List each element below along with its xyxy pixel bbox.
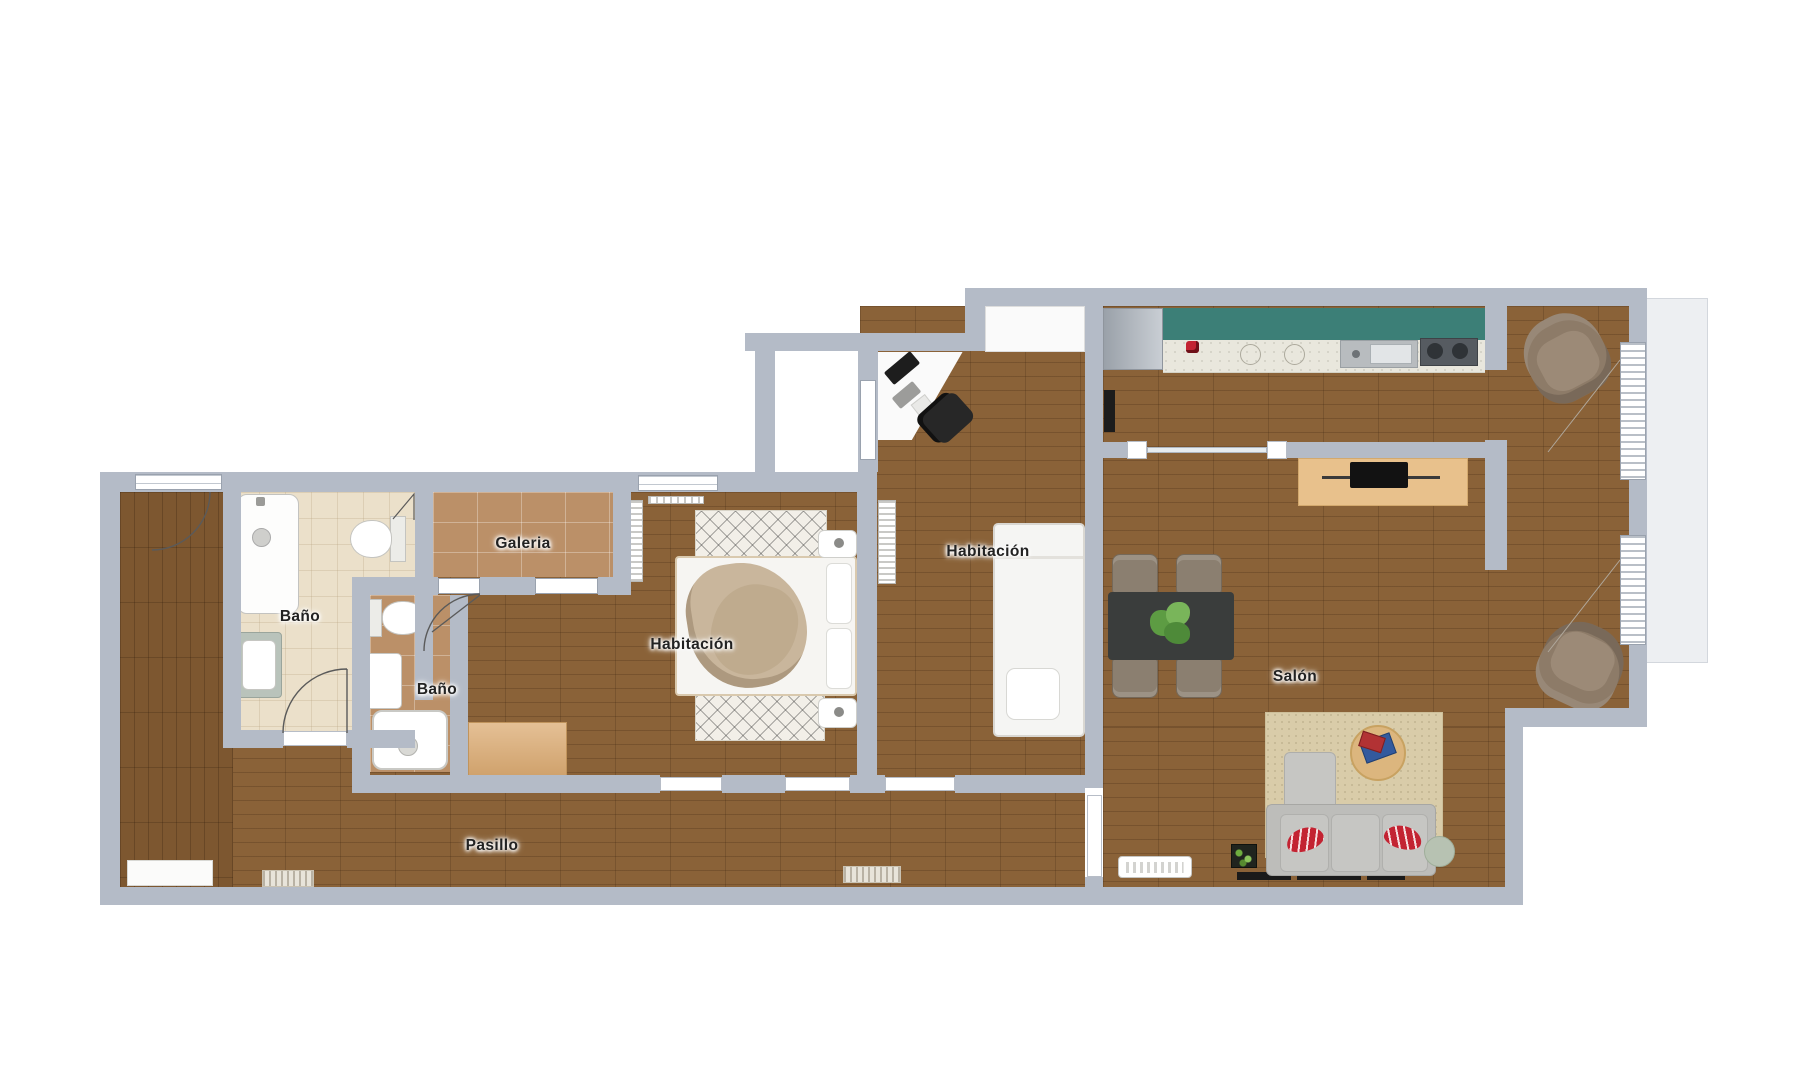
slider-frame [1127, 441, 1147, 459]
room-label-bano-pequeno: Baño [417, 681, 457, 699]
vanity-sink [242, 640, 276, 690]
table-plant-icon [1146, 600, 1198, 648]
kitchen-faucet-icon [1352, 350, 1360, 358]
wall-vent [648, 496, 704, 504]
wall [1085, 288, 1103, 788]
wall [755, 333, 775, 492]
wall [722, 775, 785, 793]
shower-head-icon [252, 528, 271, 547]
wall [352, 577, 370, 790]
floor-plan: Baño Galeria Baño Habitación Habitación … [0, 0, 1798, 1080]
bathtub [237, 494, 299, 614]
bed-pillow [826, 563, 852, 624]
wall [223, 492, 241, 748]
doormat [843, 866, 901, 883]
sofa-chaise [1284, 752, 1336, 810]
wall [415, 492, 433, 700]
wall [1103, 442, 1127, 458]
hall-cabinet [127, 860, 213, 886]
slider-frame [1267, 441, 1287, 459]
balcony-window [1620, 342, 1646, 480]
wall [598, 577, 631, 595]
kitchen-sink-basin [1370, 344, 1412, 364]
wall [850, 775, 885, 793]
door-habitacion-principal [660, 777, 722, 791]
radiator [878, 500, 896, 584]
tv [1350, 462, 1408, 488]
wall [1505, 708, 1523, 905]
sliding-door-habitacion-2 [885, 777, 955, 791]
fridge [1103, 308, 1163, 370]
room-label-pasillo: Pasillo [466, 837, 519, 855]
wall [1085, 877, 1103, 887]
planter-box [1231, 844, 1257, 868]
window [860, 380, 876, 460]
room-label-habitacion-principal: Habitación [650, 636, 733, 654]
wall [965, 288, 1647, 306]
burner-ring-icon [1284, 344, 1305, 365]
ac-unit [1118, 856, 1192, 878]
kitchen-upper-cabinets [1163, 308, 1485, 340]
door-pasillo-salon [1087, 795, 1102, 877]
room-label-habitacion-secundaria: Habitación [946, 543, 1029, 561]
sliding-door-habitacion-2 [785, 777, 850, 791]
dining-chair [1112, 658, 1158, 698]
bath-faucet-icon [256, 497, 265, 506]
closet-top [985, 306, 1085, 352]
doormat [262, 870, 314, 887]
room-label-bano-principal: Baño [280, 608, 320, 626]
single-bed-pillow [1006, 668, 1060, 720]
wall [1505, 708, 1647, 727]
plant-leaf [1164, 622, 1190, 644]
balcony-window [1620, 535, 1646, 645]
wall [1485, 440, 1507, 570]
nightstand-lamp-icon [834, 707, 844, 717]
room-label-galeria: Galeria [495, 535, 550, 553]
armchair-cushion [1545, 625, 1621, 697]
window [638, 475, 718, 491]
wall [100, 887, 1523, 905]
balcony [1646, 298, 1708, 663]
patio-void [775, 351, 860, 472]
galeria-window [535, 578, 598, 594]
room-label-salon: Salón [1273, 668, 1317, 686]
armchair-cushion [1530, 324, 1606, 398]
electric-panel [1104, 390, 1115, 432]
wall [100, 472, 120, 905]
dining-chair [1112, 554, 1158, 594]
dining-chair [1176, 554, 1222, 594]
wall [857, 472, 877, 775]
wall [352, 775, 660, 793]
bed-rug-bottom [695, 695, 825, 741]
wall [745, 333, 967, 351]
bed-pillow [826, 628, 852, 689]
toilet-tank [390, 516, 406, 562]
dining-chair [1176, 658, 1222, 698]
bed-rug-top [695, 510, 827, 558]
galeria-window [438, 578, 480, 594]
window [135, 474, 222, 490]
wall [1485, 303, 1507, 370]
nightstand-lamp-icon [834, 538, 844, 548]
sofa-cushion [1331, 814, 1380, 872]
cooktop-burner-icon [1452, 343, 1468, 359]
wall [480, 577, 535, 595]
moka-pot-icon [1186, 341, 1199, 353]
floor-entry [120, 492, 233, 887]
wall [955, 775, 1085, 793]
wardrobe [468, 722, 567, 778]
side-table [1424, 836, 1455, 867]
door-bano-principal [283, 731, 347, 746]
toilet-bowl [350, 520, 392, 558]
glass-partition [1147, 447, 1267, 453]
wall [1287, 442, 1485, 458]
cooktop-burner-icon [1427, 343, 1443, 359]
burner-ring-icon [1240, 344, 1261, 365]
